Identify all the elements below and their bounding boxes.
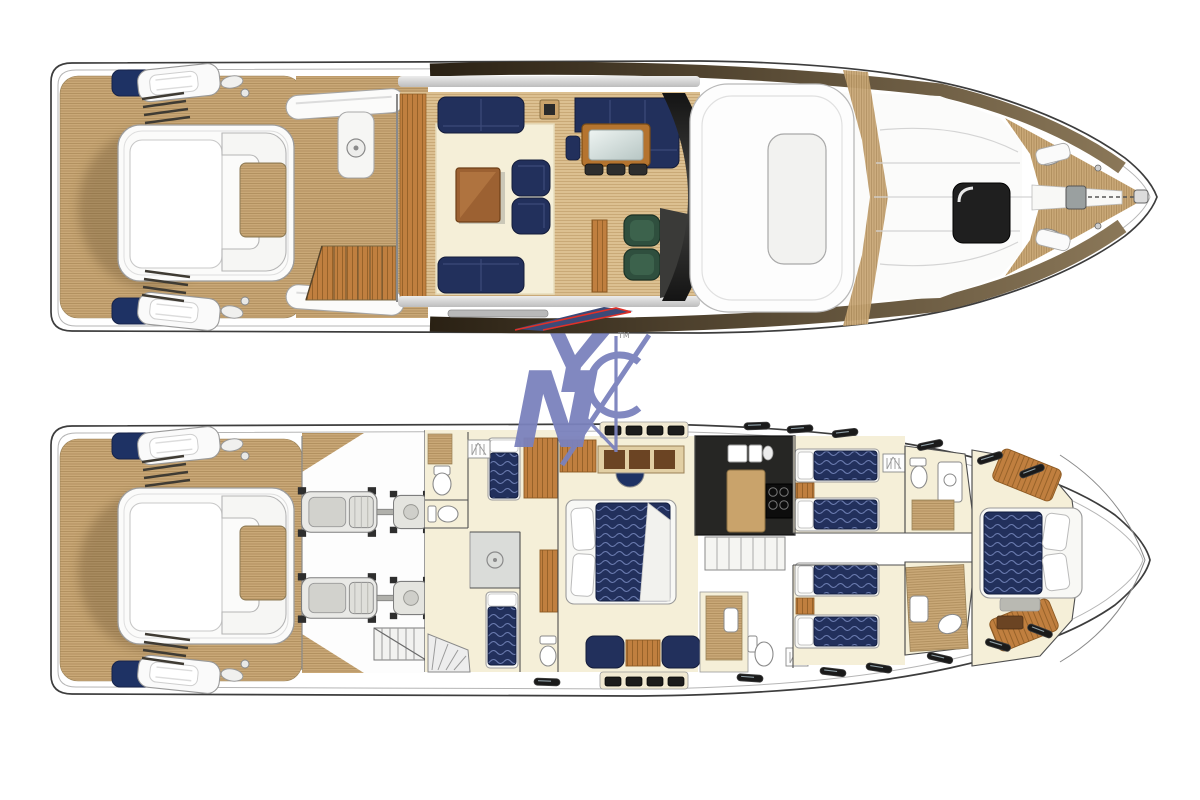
master-sofa xyxy=(586,636,700,668)
fwd-toilet-port xyxy=(911,466,927,488)
deck-plan-canvas: N Y TM xyxy=(0,0,1200,800)
crew-toilet xyxy=(433,473,451,495)
saloon xyxy=(398,76,700,317)
saloon-aft-step xyxy=(448,310,548,317)
nightstand xyxy=(796,483,814,498)
twin-bed-3 xyxy=(795,563,879,596)
master-window-row-top xyxy=(600,422,688,438)
dining-stools xyxy=(585,164,647,175)
twin-bed-4 xyxy=(795,615,879,648)
mid-bath-sink xyxy=(724,608,738,632)
twin-port-hanger-icon xyxy=(883,454,905,472)
saloon-sofa-starboard xyxy=(438,257,524,293)
aft-deck-lower xyxy=(60,425,302,694)
hardtop xyxy=(690,84,854,312)
bathroom-forward-starboard xyxy=(905,562,975,655)
ensuite-toilet xyxy=(540,646,556,666)
dining-table xyxy=(582,124,650,166)
galley xyxy=(695,436,795,570)
twin-bed-1 xyxy=(795,449,879,482)
crew-hanger-icon xyxy=(468,440,490,458)
saloon-sofa-port xyxy=(438,97,524,133)
saloon-sideboard xyxy=(592,220,607,292)
foredeck-hatch xyxy=(953,183,1010,243)
galley-stove xyxy=(766,484,792,518)
nightstand-2 xyxy=(796,598,814,614)
master-window-row-bottom xyxy=(600,672,688,689)
twin-bed-2 xyxy=(795,498,879,531)
foredeck xyxy=(690,70,1148,326)
yacht-deck-plan-page: N Y TM xyxy=(0,0,1200,800)
fwd-vanity-port xyxy=(938,462,962,502)
twin-cabin-starboard xyxy=(793,563,905,668)
saloon-sill-top xyxy=(398,76,700,87)
master-sideboard xyxy=(598,446,684,473)
cockpit-stairway xyxy=(306,246,396,300)
main-deck-plan xyxy=(51,61,1157,333)
crew-toilet-2 xyxy=(438,506,458,522)
galley-island xyxy=(727,470,765,532)
vip-step xyxy=(1000,598,1040,611)
fwd-sink-starboard xyxy=(910,596,928,622)
hardtop-sunroof xyxy=(768,134,826,264)
ensuite-vanity xyxy=(540,550,558,612)
bathroom-forward-port xyxy=(905,446,975,533)
galley-sink xyxy=(728,445,747,462)
engine-room-stairs xyxy=(374,628,426,660)
coffee-table xyxy=(456,168,505,224)
vip-bed xyxy=(980,508,1082,598)
dining-chair xyxy=(566,136,580,160)
cockpit-wet-bar xyxy=(338,112,374,178)
aft-deck-cockpit xyxy=(60,62,302,331)
vip-mat xyxy=(997,616,1023,629)
mid-bath-toilet xyxy=(755,642,773,666)
crew-bunk-bottom xyxy=(486,592,518,668)
twin-cabin-port xyxy=(793,436,905,533)
companionway-stairs xyxy=(705,537,785,570)
saloon-sill-bottom xyxy=(398,296,700,307)
tv-cabinet xyxy=(540,100,559,119)
logo-trademark: TM xyxy=(617,331,630,340)
saloon-threshold xyxy=(400,94,426,302)
master-bed xyxy=(566,500,676,604)
lower-deck-plan xyxy=(51,422,1150,696)
